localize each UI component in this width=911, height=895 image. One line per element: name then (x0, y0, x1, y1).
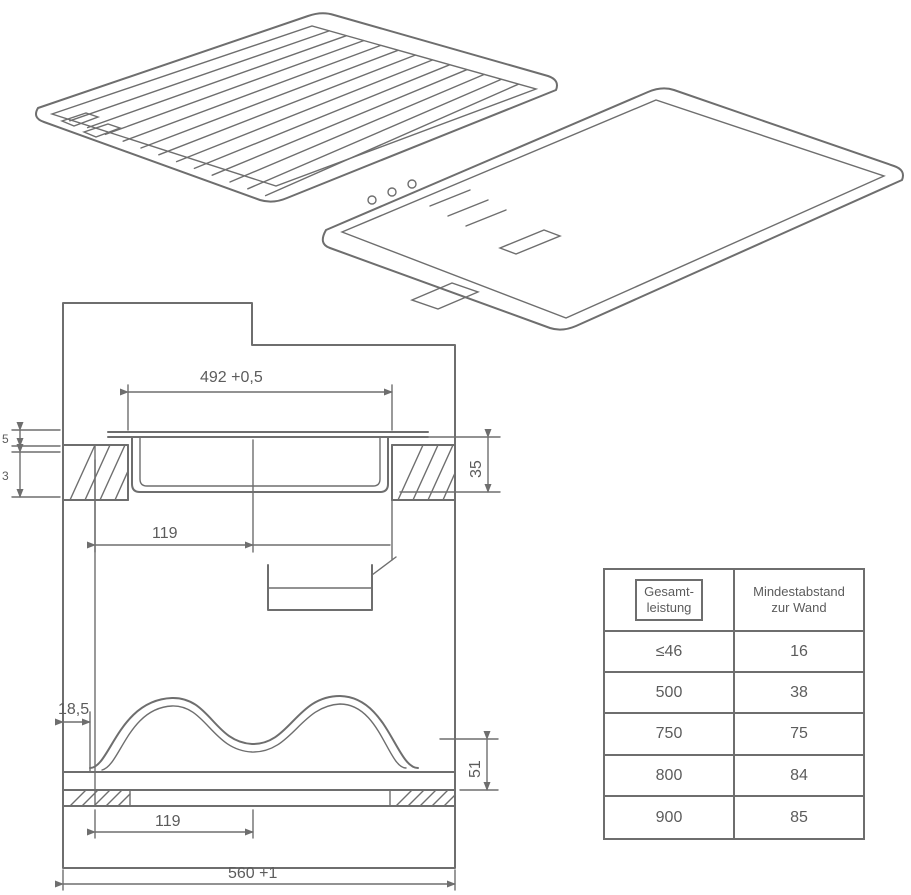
dim-cutout-width: 492 +0,5 (128, 369, 392, 430)
dim-right-upper-label: 35 (468, 460, 485, 478)
dim-offset-bottom-label: 119 (155, 813, 181, 830)
duct-profile (90, 696, 418, 772)
table-cell: 84 (735, 756, 863, 797)
spec-table: Gesamt- leistung Mindestabstand zur Wand… (603, 568, 865, 840)
table-cell: 16 (735, 632, 863, 673)
dim-offset-top: 119 (95, 440, 390, 552)
table-cell: 800 (605, 756, 735, 797)
grill-slats (70, 31, 519, 196)
appliance-iso-large (323, 88, 903, 329)
dim-duct-offset-label: 18,5 (58, 701, 89, 718)
table-header-col2: Mindestabstand zur Wand (735, 570, 863, 632)
table-cell: 900 (605, 797, 735, 838)
dim-left-small-lower: 3 (2, 452, 60, 497)
hatching-lower-left (70, 790, 130, 806)
dim-right-lower: 51 (440, 739, 498, 790)
fixing-bracket-detail (268, 557, 396, 610)
dim-left-small-upper-label: 5 (2, 432, 9, 446)
cabinet-outline (63, 303, 455, 868)
table-cell: 750 (605, 714, 735, 755)
dim-overall-width-label: 560 +1 (228, 865, 277, 882)
dim-offset-top-label: 119 (152, 525, 178, 542)
hatching-left (70, 445, 128, 500)
worktop-section-lower (63, 772, 455, 806)
hatching-lower-right (396, 790, 455, 806)
installation-diagram: 492 +0,5 119 35 5 3 (0, 0, 911, 895)
dim-left-small-lower-label: 3 (2, 469, 9, 483)
table-header-col1-text: Gesamt- leistung (635, 579, 703, 620)
dim-left-small-upper: 5 (2, 430, 60, 446)
table-cell: 38 (735, 673, 863, 714)
table-cell: ≤46 (605, 632, 735, 673)
table-header-col1: Gesamt- leistung (605, 570, 735, 632)
dim-offset-bottom: 119 (95, 810, 253, 838)
appliance-iso-small (36, 13, 557, 201)
hob-cross-section (63, 432, 455, 500)
table-header-col2-text: Mindestabstand zur Wand (753, 584, 845, 615)
table-cell: 500 (605, 673, 735, 714)
dim-right-lower-label: 51 (467, 760, 484, 778)
dim-cutout-width-label: 492 +0,5 (200, 369, 263, 386)
table-cell: 85 (735, 797, 863, 838)
table-cell: 75 (735, 714, 863, 755)
